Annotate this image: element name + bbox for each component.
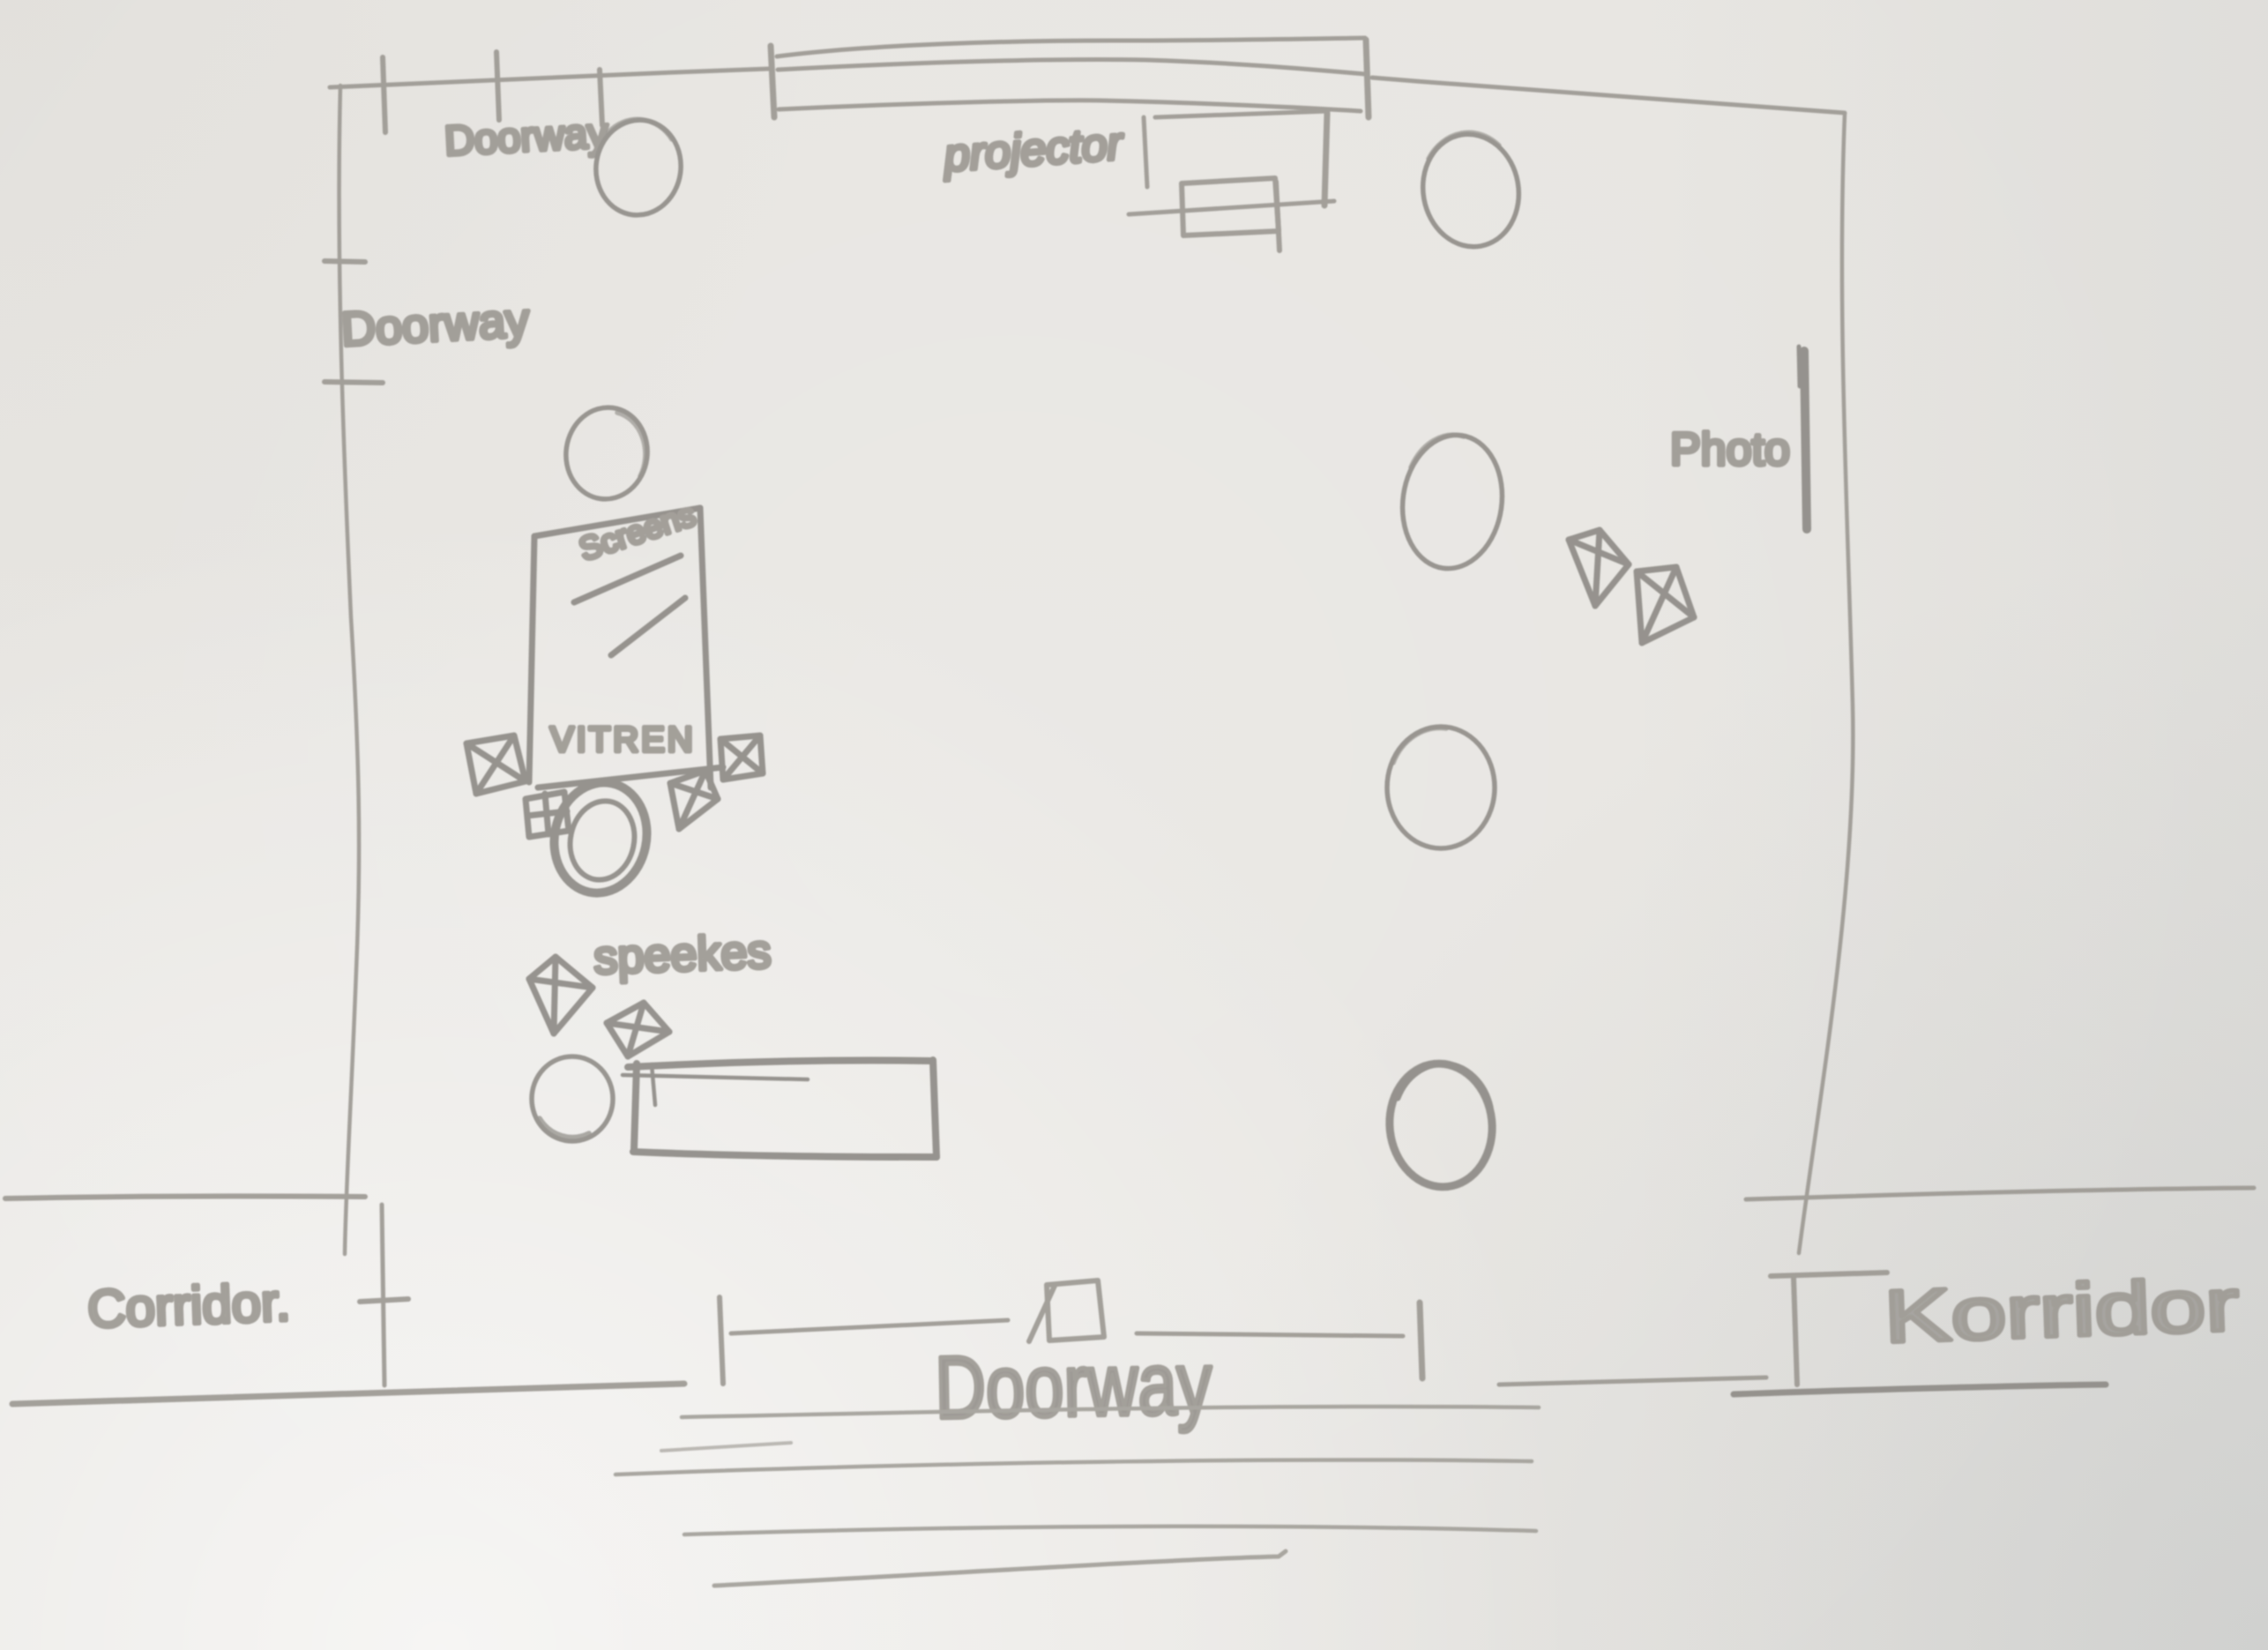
- svg-text:Corridor.: Corridor.: [86, 1273, 291, 1339]
- svg-text:speekes: speekes: [593, 925, 772, 984]
- svg-text:Doorway: Doorway: [339, 294, 530, 356]
- svg-text:Photo: Photo: [1670, 424, 1790, 475]
- svg-text:VITREN: VITREN: [550, 720, 696, 759]
- svg-text:Korridor: Korridor: [1883, 1263, 2240, 1358]
- svg-text:Doorway: Doorway: [934, 1334, 1212, 1437]
- svg-text:Doorway: Doorway: [444, 108, 609, 164]
